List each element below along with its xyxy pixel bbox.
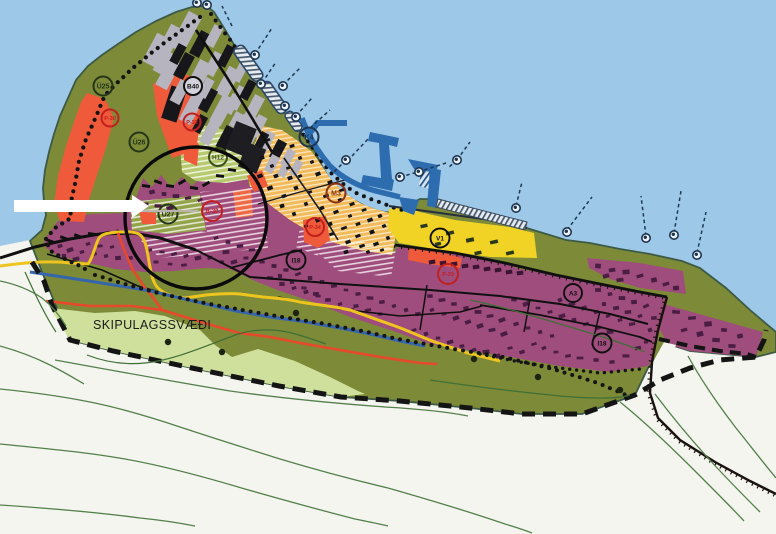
svg-text:I18: I18	[597, 340, 606, 347]
svg-text:P-32: P-32	[186, 120, 198, 126]
svg-text:I18: I18	[291, 257, 300, 264]
svg-text:K4: K4	[305, 135, 314, 142]
svg-text:P-34: P-34	[309, 225, 322, 231]
svg-text:V1: V1	[436, 235, 444, 242]
svg-text:H12: H12	[212, 154, 224, 161]
svg-text:Ü26: Ü26	[133, 138, 146, 147]
svg-text:B-30: B-30	[205, 209, 219, 215]
svg-text:P-30: P-30	[104, 116, 116, 122]
svg-text:M3: M3	[331, 191, 341, 198]
svg-text:P-33: P-33	[442, 272, 454, 278]
svg-text:SKIPULAGSSVÆÐI: SKIPULAGSSVÆÐI	[93, 318, 211, 332]
svg-text:B40: B40	[187, 83, 199, 90]
svg-text:A3: A3	[569, 290, 578, 297]
svg-text:Ü25: Ü25	[97, 82, 110, 91]
